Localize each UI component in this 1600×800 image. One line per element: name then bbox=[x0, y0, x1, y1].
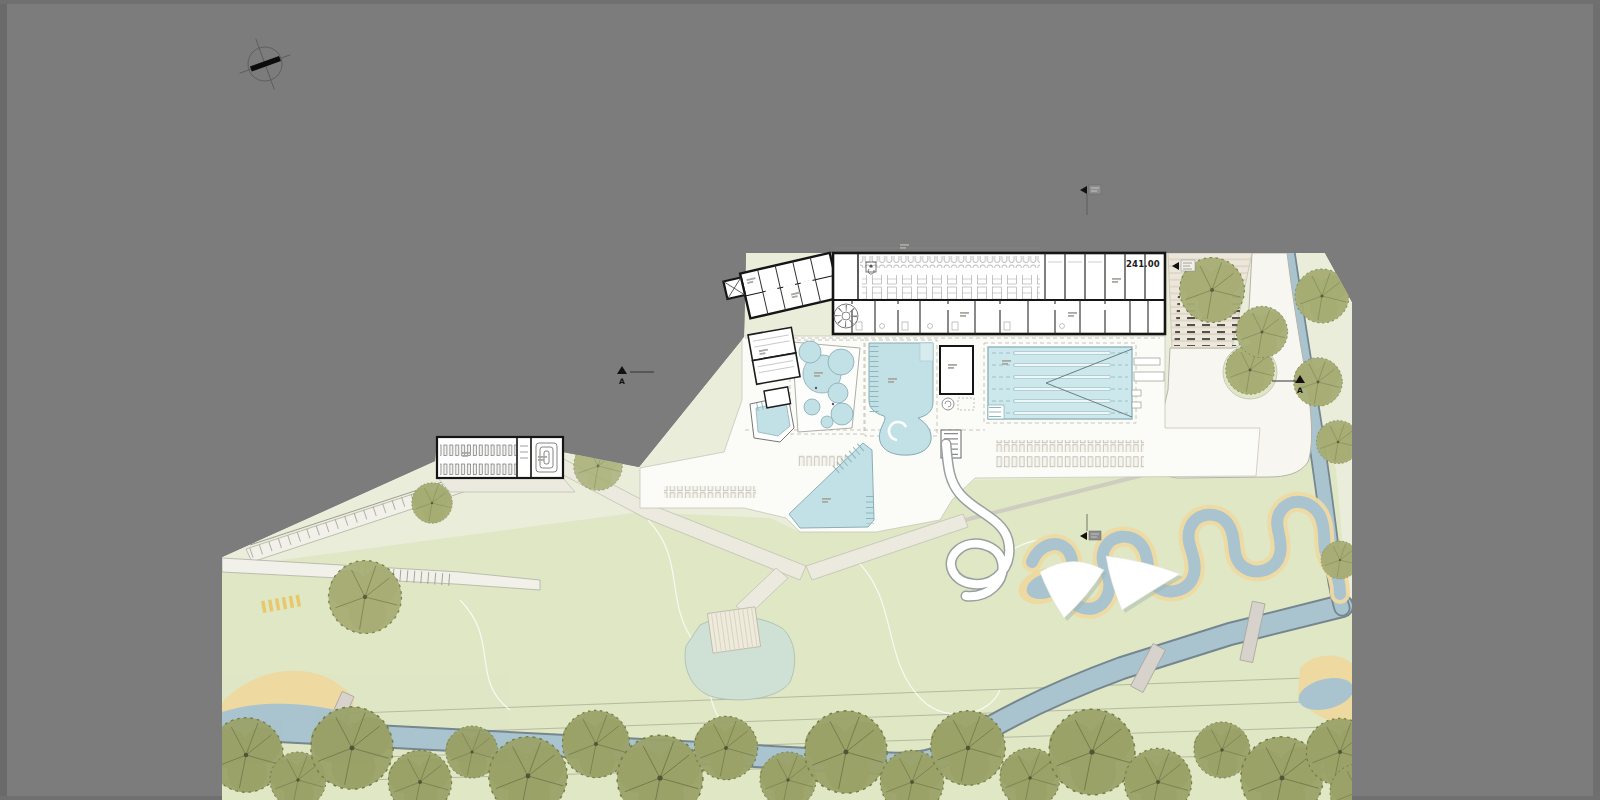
elevation-label: 241.00 bbox=[1126, 259, 1160, 269]
sun-lounger-row bbox=[996, 456, 1144, 468]
wooden-deck bbox=[707, 607, 760, 653]
section-letter: A bbox=[619, 377, 625, 386]
site-plan-drawing: 241.00 A A bbox=[0, 0, 1600, 800]
sun-lounger-row bbox=[664, 486, 756, 498]
changing-cubicle-row bbox=[860, 256, 1040, 268]
section-letter: A bbox=[1297, 386, 1303, 395]
bike-racks bbox=[440, 439, 516, 477]
building-main-block: 241.00 bbox=[833, 244, 1165, 334]
bike-shelter bbox=[437, 437, 563, 478]
tree bbox=[412, 483, 453, 524]
sun-lounger-row bbox=[996, 440, 1144, 452]
tree bbox=[329, 561, 402, 634]
whirlpool-cluster bbox=[792, 341, 860, 432]
tree bbox=[1236, 306, 1287, 357]
locker-banks bbox=[862, 275, 1040, 300]
site-plan-sheet: 241.00 A A bbox=[0, 0, 1600, 800]
